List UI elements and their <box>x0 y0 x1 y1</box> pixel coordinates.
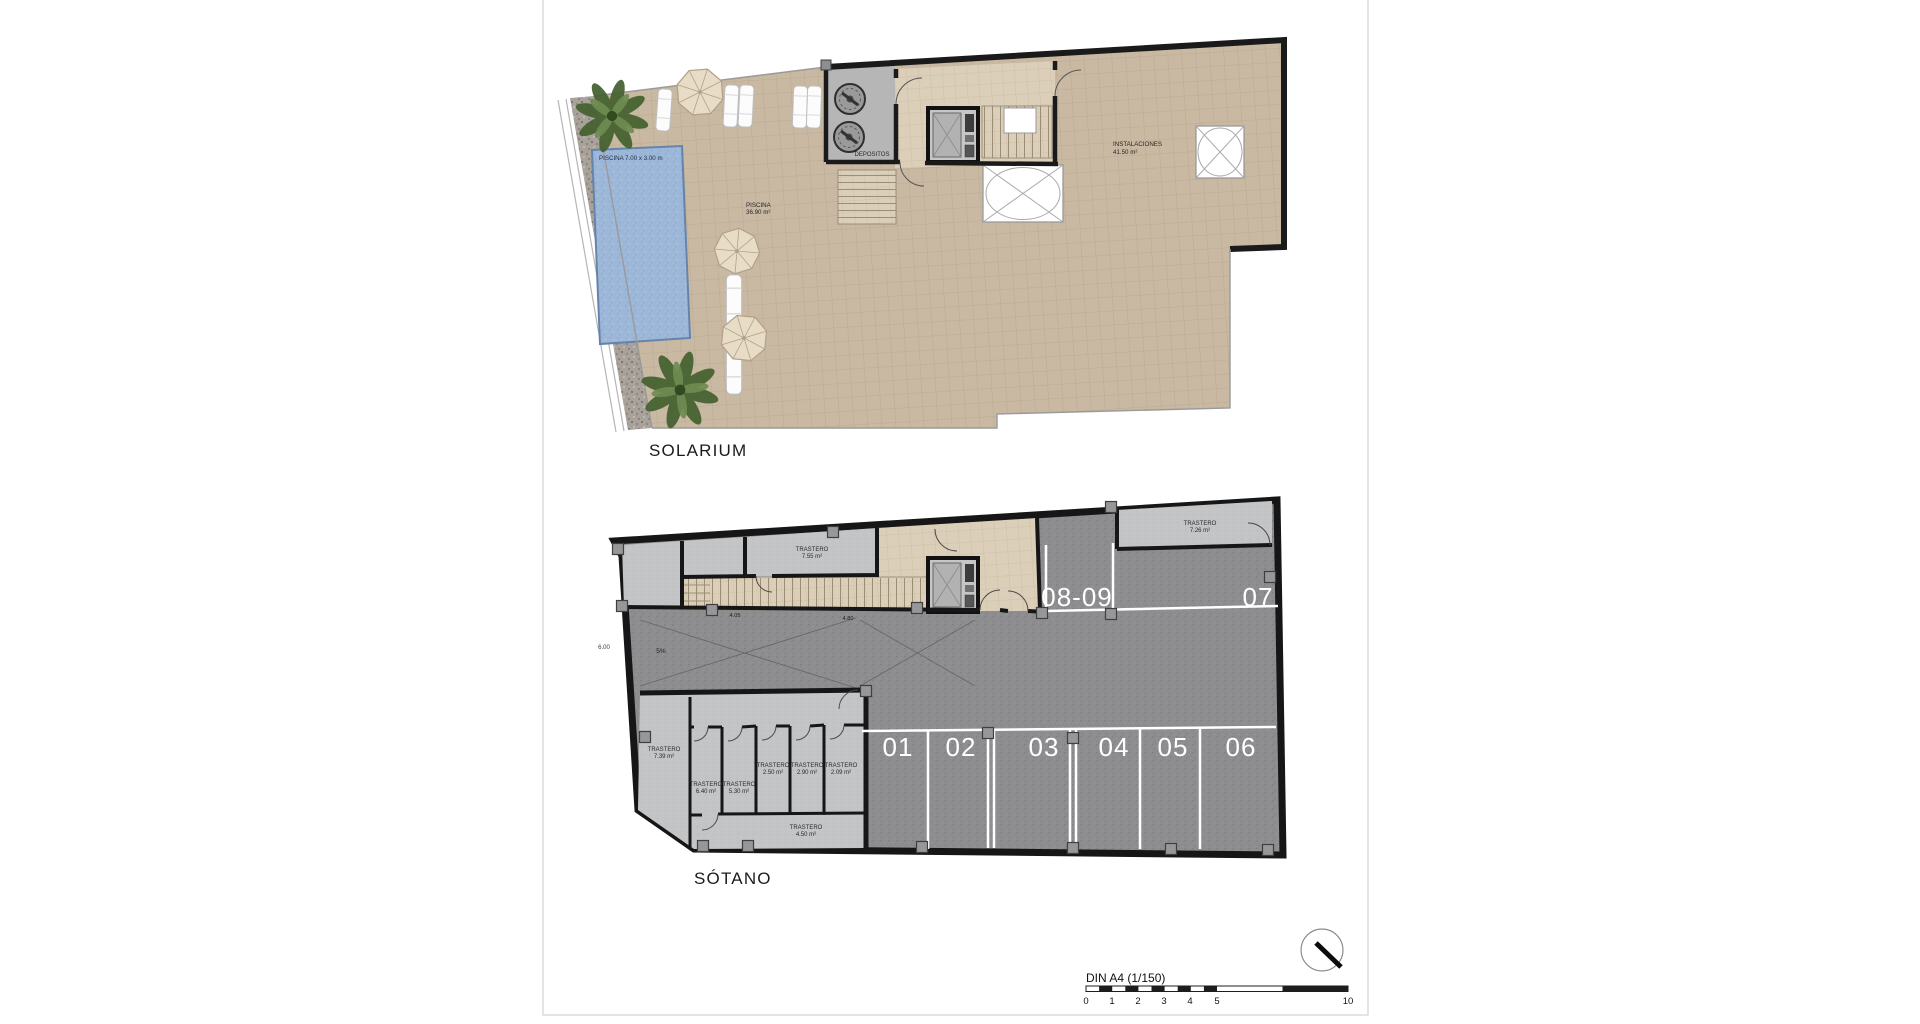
basement-stairs <box>682 577 927 610</box>
trastero-label: TRASTERO <box>825 763 858 769</box>
trastero-label: TRASTERO <box>1184 521 1217 527</box>
sun-lounger <box>792 86 807 128</box>
trastero-area: 7.26 m² <box>1190 528 1210 534</box>
floorplan-svg: PISCINA 7.00 x 3.00 m PISCINA 36.90 m² D… <box>0 0 1920 1024</box>
parking-space-07: 07 <box>1243 582 1274 612</box>
scale-tick: 3 <box>1161 996 1166 1007</box>
scale-tick: 10 <box>1343 996 1354 1007</box>
depositos-room <box>826 63 895 162</box>
scale-tick: 0 <box>1083 996 1088 1007</box>
ramp-grade-label: 5% <box>656 648 666 655</box>
water-tank-icon <box>835 84 865 114</box>
scale-bar: DIN A4 (1/150) 0 1 2 3 4 5 10 <box>1083 971 1353 1007</box>
parking-space-01: 01 <box>883 732 914 762</box>
elevator <box>928 108 978 162</box>
parking-space-03: 03 <box>1029 732 1060 762</box>
trastero-label: TRASTERO <box>723 782 756 788</box>
sun-lounger <box>738 85 754 128</box>
instalaciones-label: INSTALACIONES <box>1113 141 1162 148</box>
scale-tick: 4 <box>1187 996 1192 1007</box>
trastero-area: 7.55 m² <box>802 554 822 560</box>
sotano-title: SÓTANO <box>694 869 772 888</box>
column <box>821 60 831 70</box>
storage-room <box>682 537 745 577</box>
trastero-label: TRASTERO <box>757 763 790 769</box>
trastero-area: 6.40 m² <box>696 789 716 795</box>
solarium-plan: PISCINA 7.00 x 3.00 m PISCINA 36.90 m² D… <box>558 40 1284 444</box>
trastero-label: TRASTERO <box>790 825 823 831</box>
trastero-label: TRASTERO <box>791 763 824 769</box>
trastero-area: 2.50 m² <box>763 770 783 776</box>
parking-space-05: 05 <box>1158 732 1189 762</box>
scale-tick: 5 <box>1214 996 1219 1007</box>
dimension-a: 4.05 <box>730 613 741 619</box>
pool-area-label: PISCINA <box>746 202 772 209</box>
parking-space-06: 06 <box>1226 732 1257 762</box>
trastero-label: TRASTERO <box>796 547 829 553</box>
trastero-label: TRASTERO <box>648 747 681 753</box>
instalaciones-area: 41.50 m² <box>1113 149 1137 156</box>
water-tank-icon <box>834 122 864 152</box>
drawing-sheet: PISCINA 7.00 x 3.00 m PISCINA 36.90 m² D… <box>0 0 1920 1024</box>
sotano-plan: TRASTERO 7.55 m² TRASTERO 7.26 m² TRASTE… <box>598 500 1283 856</box>
trastero-area: 5.30 m² <box>729 789 749 795</box>
dimension-width: 6.00 <box>598 645 610 651</box>
sun-lounger <box>656 89 673 132</box>
stairs-down <box>838 170 896 224</box>
parking-space-02: 02 <box>946 732 977 762</box>
courtyard-shaft-2 <box>1196 126 1244 178</box>
sun-lounger <box>723 85 739 128</box>
parking-space-08-09: 08-09 <box>1041 582 1113 612</box>
trastero-area: 2.90 m² <box>797 770 817 776</box>
north-arrow-icon <box>1301 929 1343 971</box>
trastero-area: 4.50 m² <box>796 832 816 838</box>
storage-room <box>622 541 682 608</box>
pool-area-value: 36.90 m² <box>746 209 770 216</box>
pool-dimension-label: PISCINA 7.00 x 3.00 m <box>599 155 663 162</box>
elevator <box>928 558 978 612</box>
scale-tick: 2 <box>1135 996 1140 1007</box>
scale-tick: 1 <box>1109 996 1114 1007</box>
scale-label: DIN A4 (1/150) <box>1086 971 1165 985</box>
solarium-title: SOLARIUM <box>649 441 747 460</box>
courtyard-shaft-1 <box>983 165 1063 222</box>
parking-space-04: 04 <box>1099 732 1130 762</box>
pool <box>592 146 690 344</box>
sun-lounger <box>806 86 821 128</box>
depositos-label: DEPOSITOS <box>855 152 890 158</box>
dimension-b: 4.80 <box>843 616 854 622</box>
trastero-area: 2.09 m² <box>831 770 851 776</box>
trastero-label: TRASTERO <box>690 782 723 788</box>
stairs-up <box>982 106 1052 158</box>
trastero-area: 7.39 m² <box>654 754 674 760</box>
